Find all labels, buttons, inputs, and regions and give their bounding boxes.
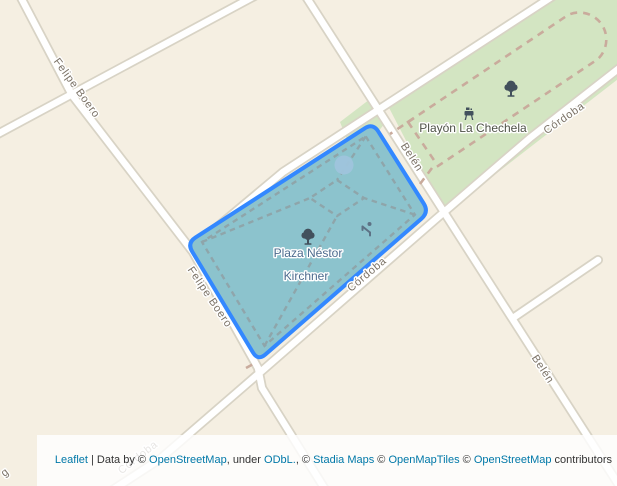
attribution-link-openstreetmap[interactable]: OpenStreetMap [149,454,227,466]
attribution-text: contributors [551,454,612,466]
map-canvas[interactable]: Felipe Boero Felipe Boero Belén Belén Có… [0,0,617,486]
attribution-link-stadia-maps[interactable]: Stadia Maps [313,454,374,466]
plaza-label-line1: Plaza Néstor [274,246,343,260]
attribution-text: © [460,454,474,466]
attribution-link-odbl[interactable]: ODbL. [264,454,296,466]
map-container: Felipe Boero Felipe Boero Belén Belén Có… [0,0,617,486]
attribution-text: , under [227,454,264,466]
attribution-link-openmaptiles[interactable]: OpenMapTiles [388,454,459,466]
attribution-link-leaflet[interactable]: Leaflet [55,454,88,466]
attribution-text: | Data by © [88,454,149,466]
attribution-bar: Leaflet | Data by © OpenStreetMap, under… [37,435,617,486]
attribution-link-openstreetmap[interactable]: OpenStreetMap [474,454,552,466]
plaza-label-line2: Kirchner [284,269,329,283]
attribution-text: , © [296,454,313,466]
attribution-text: © [374,454,388,466]
fountain-circle [335,156,354,175]
playon-label: Playón La Chechela [419,121,527,135]
